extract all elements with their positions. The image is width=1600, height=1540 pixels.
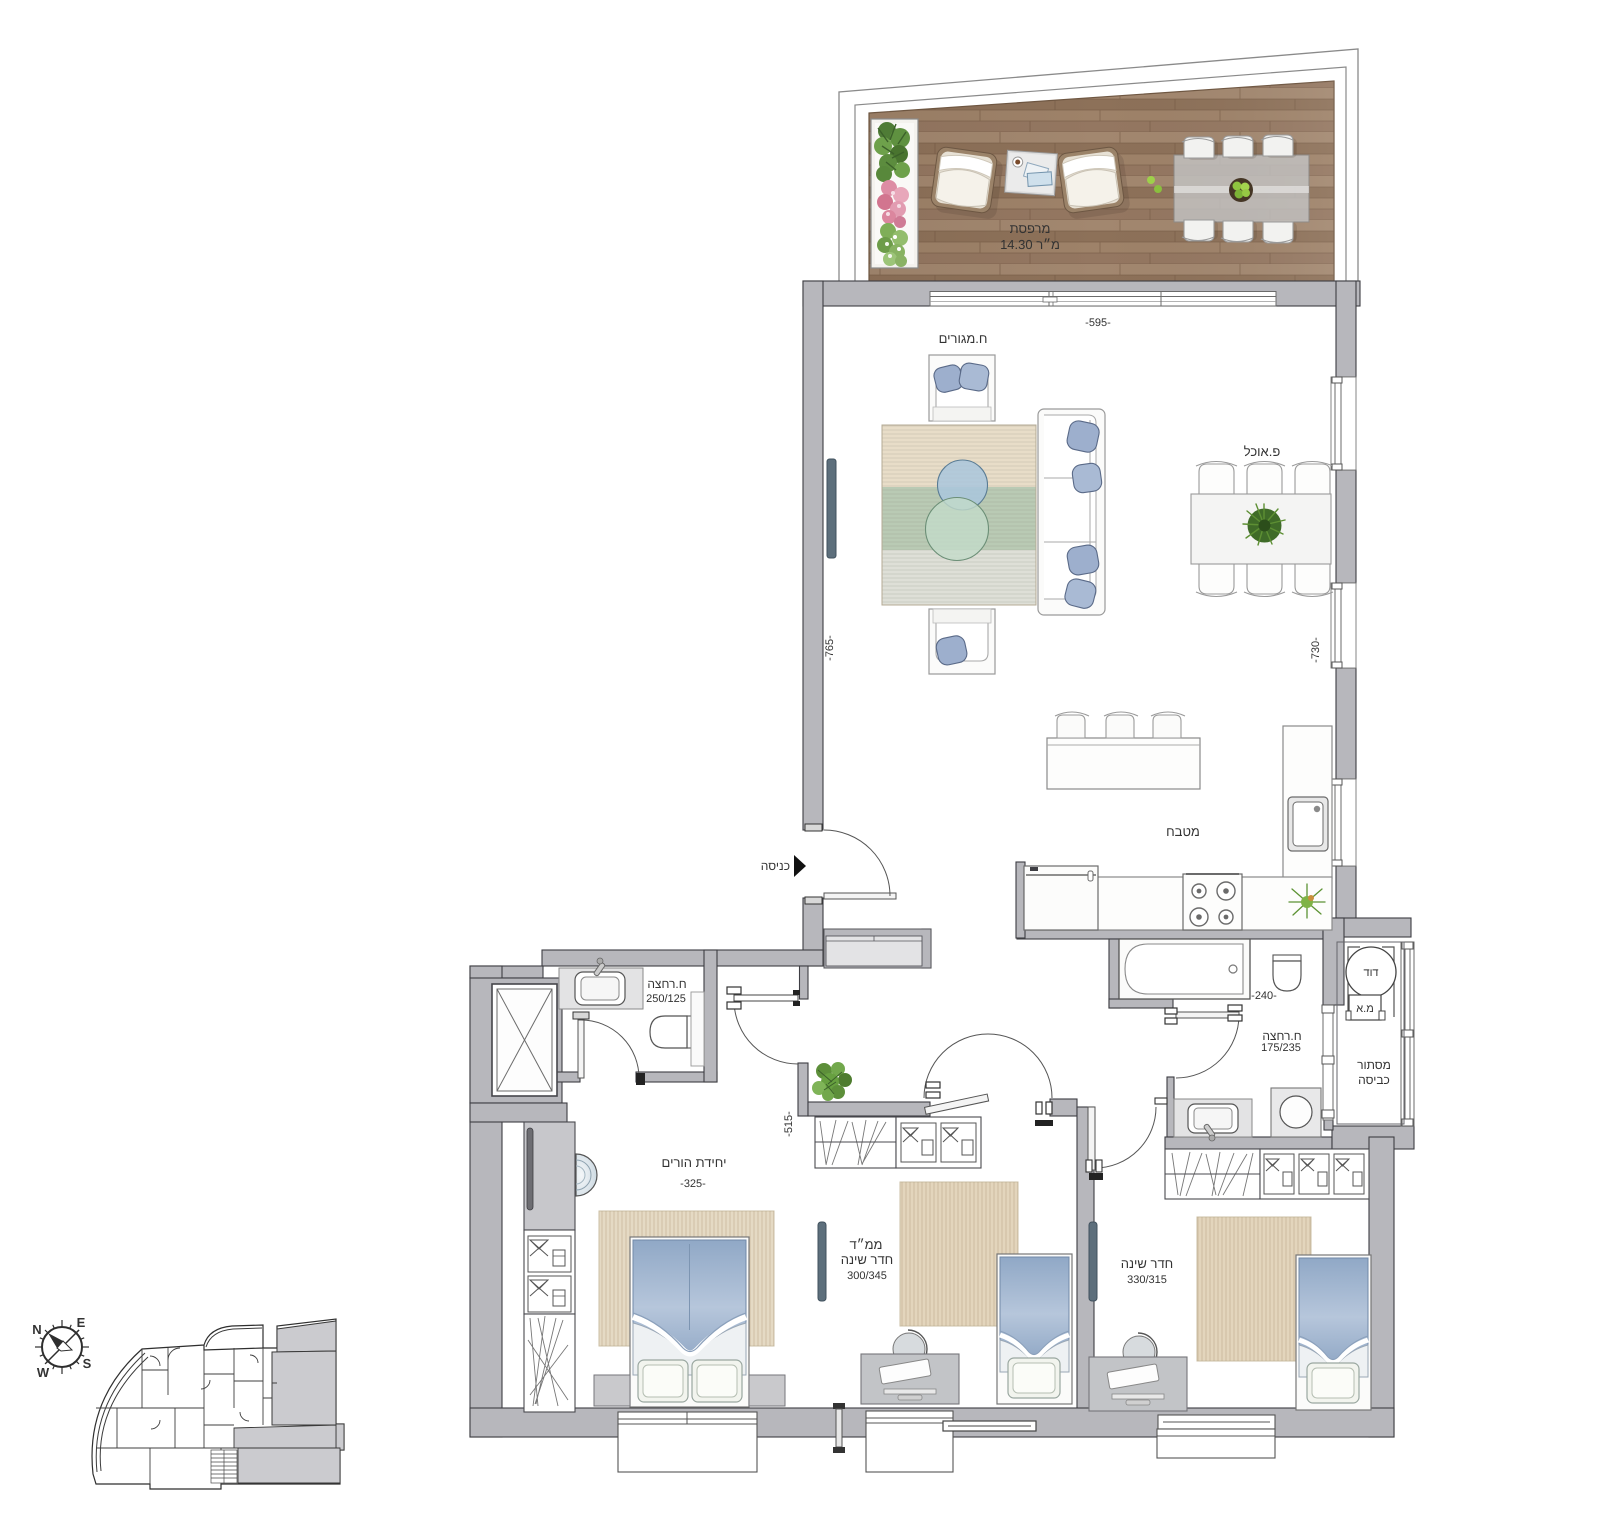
svg-text:-325-: -325- <box>680 1178 706 1190</box>
svg-text:300/345: 300/345 <box>847 1270 887 1282</box>
svg-text:ממ״ד: ממ״ד <box>850 1237 883 1252</box>
svg-text:N: N <box>32 1322 41 1337</box>
svg-text:מטבח: מטבח <box>1166 824 1200 839</box>
svg-text:-515-: -515- <box>783 1111 795 1137</box>
svg-text:דוד: דוד <box>1363 967 1378 979</box>
svg-text:175/235: 175/235 <box>1261 1042 1301 1054</box>
svg-text:14.30 מ״ר: 14.30 מ״ר <box>1000 237 1060 252</box>
svg-text:כביסה: כביסה <box>1358 1073 1390 1087</box>
svg-text:ח.רחצה: ח.רחצה <box>647 977 686 991</box>
svg-text:-730-: -730- <box>1310 637 1322 663</box>
svg-text:250/125: 250/125 <box>646 993 686 1005</box>
svg-text:-765-: -765- <box>824 635 836 661</box>
svg-text:מרפסת: מרפסת <box>1010 221 1051 236</box>
svg-text:-240-: -240- <box>1251 990 1277 1002</box>
svg-text:ח.רחצה: ח.רחצה <box>1262 1029 1301 1043</box>
svg-text:-595-: -595- <box>1085 317 1111 329</box>
svg-text:כניסה: כניסה <box>761 859 790 873</box>
svg-text:מ.א: מ.א <box>1356 1003 1374 1015</box>
svg-text:W: W <box>37 1365 50 1380</box>
svg-text:יחידת הורים: יחידת הורים <box>662 1155 727 1170</box>
svg-text:S: S <box>83 1356 92 1371</box>
svg-text:מסתור: מסתור <box>1357 1058 1391 1072</box>
svg-text:חדר שינה: חדר שינה <box>841 1252 893 1267</box>
svg-text:E: E <box>77 1315 86 1330</box>
svg-text:חדר שינה: חדר שינה <box>1121 1256 1173 1271</box>
svg-text:פ.אוכל: פ.אוכל <box>1244 444 1281 459</box>
svg-text:ח.מגורים: ח.מגורים <box>939 331 988 346</box>
svg-text:330/315: 330/315 <box>1127 1274 1167 1286</box>
